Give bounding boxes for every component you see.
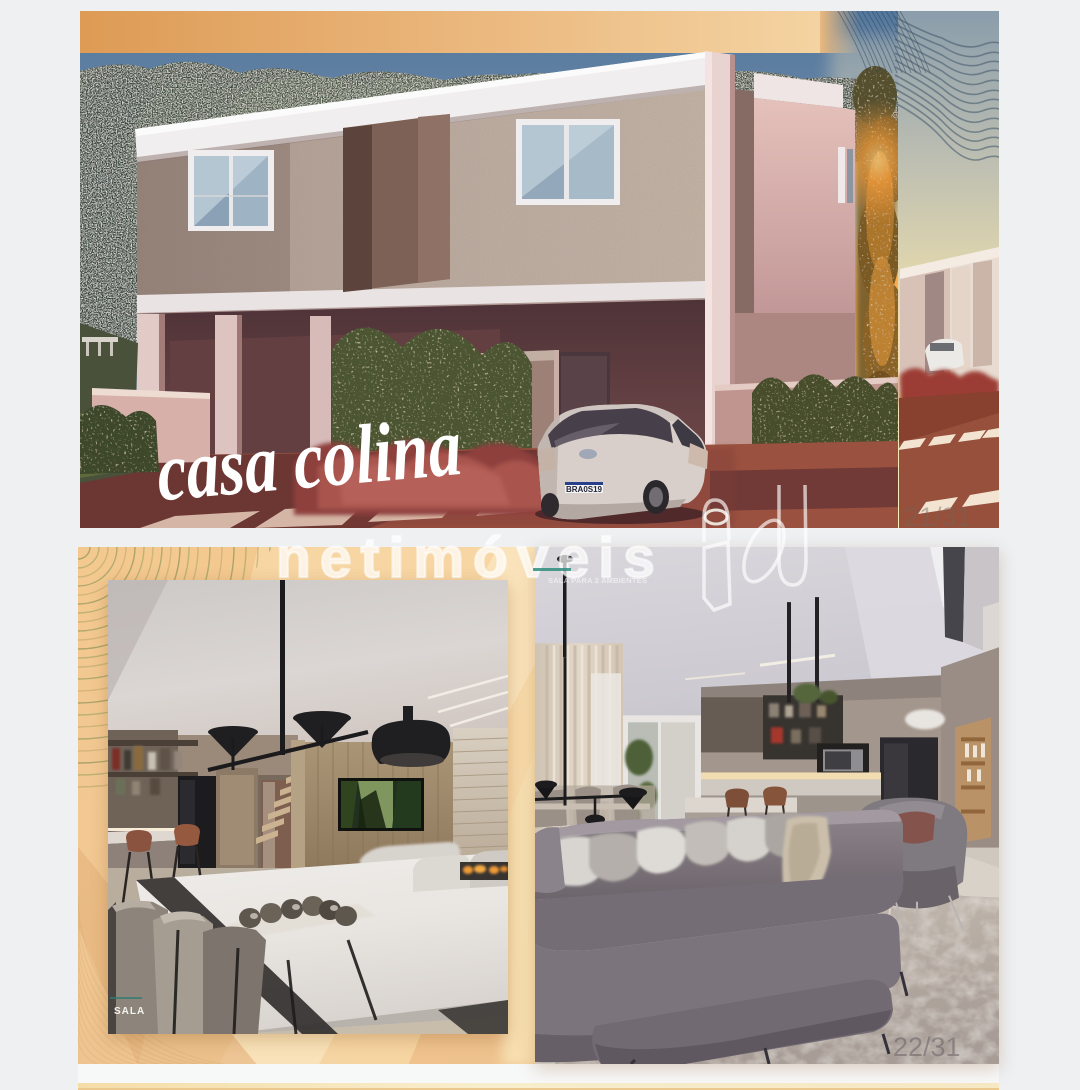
- svg-text:SALA: SALA: [114, 1006, 145, 1017]
- svg-text:22/31: 22/31: [893, 1032, 961, 1062]
